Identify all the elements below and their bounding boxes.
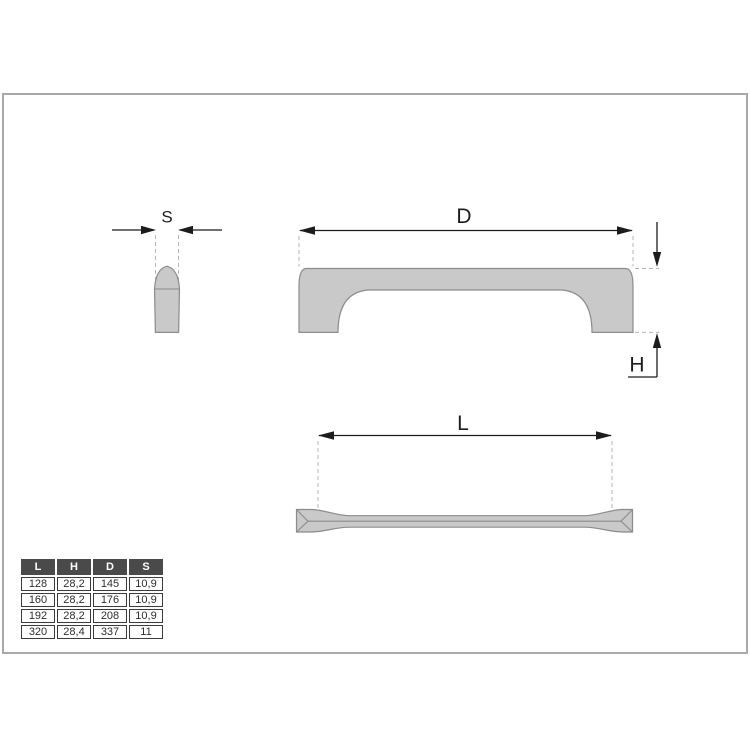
table-cell: 128 [21, 577, 55, 591]
table-cell: 160 [21, 593, 55, 607]
handle-side-profile [155, 266, 180, 332]
dim-s-arrowhead-right [178, 226, 193, 234]
d-dimension: D [299, 205, 633, 267]
table-cell: 28,2 [57, 609, 91, 623]
table-cell: 10,9 [129, 577, 163, 591]
dim-h-label: H [629, 354, 644, 377]
table-cell: 337 [93, 625, 127, 639]
dimensions-table: L H D S 128 28,2 145 10,9 160 28,2 176 1… [19, 557, 165, 641]
handle-top-view [297, 510, 633, 533]
dim-d-arrowhead-left [299, 226, 315, 234]
dim-l-arrowhead-left [318, 431, 334, 439]
dim-l-arrowhead-right [596, 431, 612, 439]
table-header-h: H [57, 559, 91, 575]
table-cell: 28,4 [57, 625, 91, 639]
table-row: 320 28,4 337 11 [21, 625, 163, 639]
technical-drawing-page: S D [0, 0, 750, 750]
table-header-l: L [21, 559, 55, 575]
table-cell: 11 [129, 625, 163, 639]
handle-front-view [299, 269, 633, 333]
dim-l-label: L [457, 412, 469, 435]
table-cell: 28,2 [57, 577, 91, 591]
table-row: 192 28,2 208 10,9 [21, 609, 163, 623]
dim-s-label: S [161, 208, 172, 227]
table-row: 128 28,2 145 10,9 [21, 577, 163, 591]
table-cell: 176 [93, 593, 127, 607]
table-header-s: S [129, 559, 163, 575]
side-profile-outline [155, 266, 180, 332]
table-cell: 320 [21, 625, 55, 639]
table-row: 160 28,2 176 10,9 [21, 593, 163, 607]
table-header-row: L H D S [21, 559, 163, 575]
dim-d-label: D [456, 205, 471, 228]
table-cell: 208 [93, 609, 127, 623]
dim-d-arrowhead-right [617, 226, 633, 234]
l-dimension: L [318, 412, 612, 520]
table-cell: 10,9 [129, 593, 163, 607]
table-cell: 28,2 [57, 593, 91, 607]
dim-h-arrowhead-down [653, 252, 661, 267]
dim-s-arrowhead-left [141, 226, 156, 234]
front-view-outline [299, 269, 633, 333]
dim-h-arrowhead-up [653, 333, 661, 348]
table-header-d: D [93, 559, 127, 575]
table-cell: 192 [21, 609, 55, 623]
table-cell: 10,9 [129, 609, 163, 623]
table-cell: 145 [93, 577, 127, 591]
